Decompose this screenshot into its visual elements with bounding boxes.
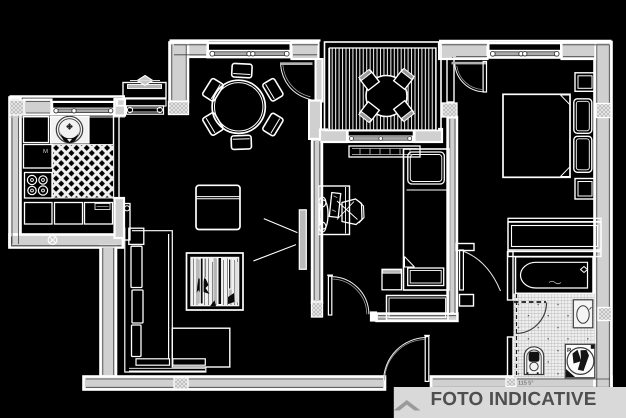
svg-text:R: R [567,347,572,354]
svg-text:M: M [43,148,48,155]
svg-text:FOTO INDICATIVE: FOTO INDICATIVE [431,389,597,410]
svg-text:115 5°: 115 5° [518,381,534,387]
